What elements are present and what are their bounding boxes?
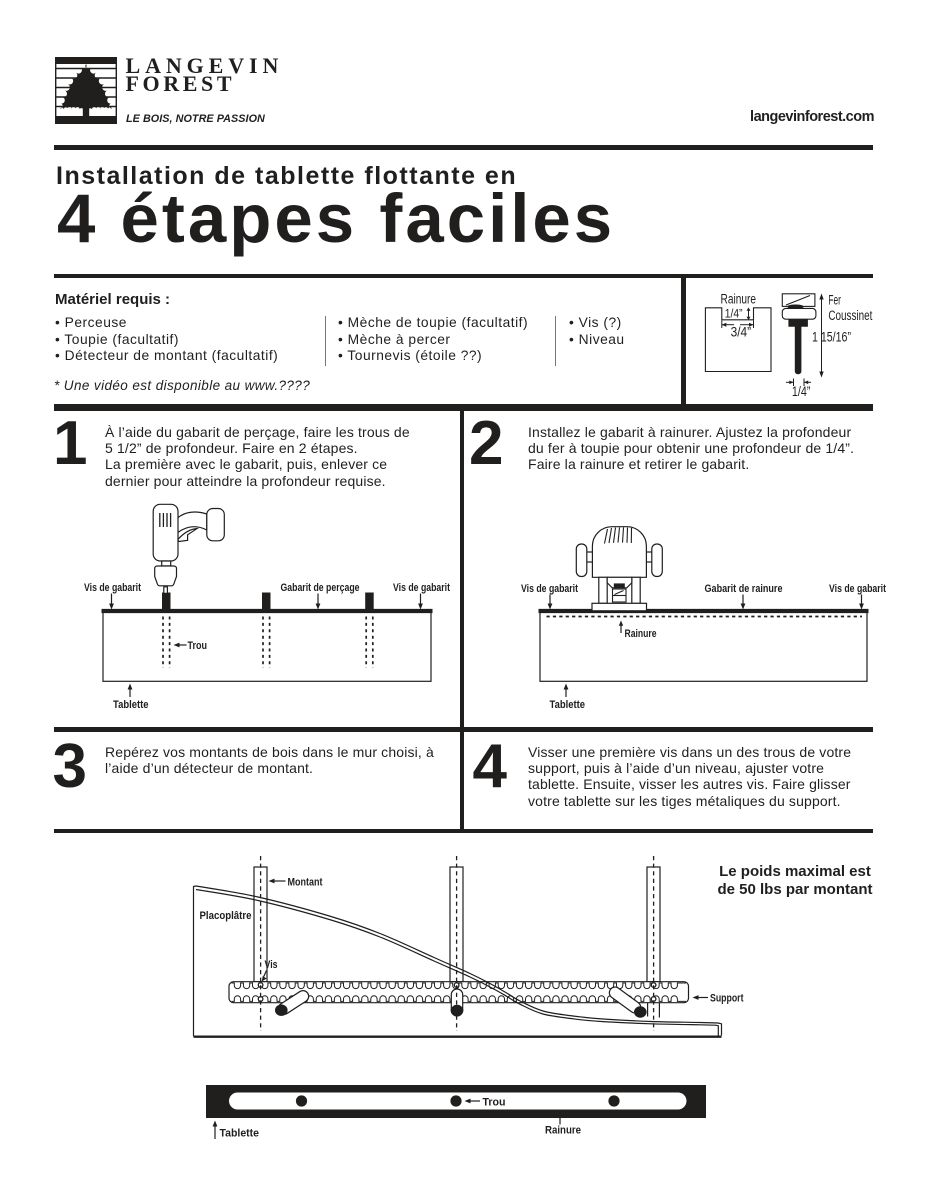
svg-text:Rainure: Rainure	[545, 1125, 581, 1137]
svg-text:Tablette: Tablette	[220, 1128, 260, 1140]
svg-text:Trou: Trou	[483, 1097, 506, 1109]
